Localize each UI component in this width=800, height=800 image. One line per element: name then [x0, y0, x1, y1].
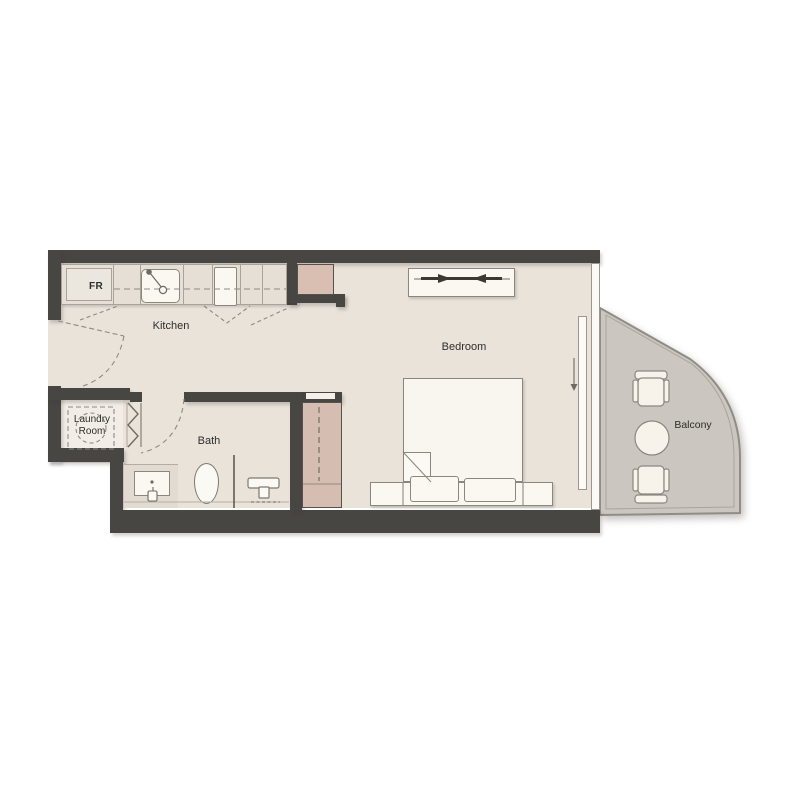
wall-shaft-foot [336, 294, 345, 307]
bedroom-label: Bedroom [424, 341, 504, 354]
counter-divider [212, 264, 213, 305]
wall-bath-top-hinge [130, 392, 142, 402]
counter-divider [262, 264, 263, 305]
service-shaft [297, 264, 334, 295]
laundry-room-label: Laundry Room [62, 414, 122, 437]
fridge-label: FR [78, 281, 114, 293]
balcony-label: Balcony [661, 419, 725, 431]
balcony-area [598, 298, 748, 523]
wall-left-upper [48, 250, 61, 320]
wardrobe-top-notch [306, 393, 335, 399]
bed-base [370, 482, 553, 506]
balcony-chair-icon [633, 466, 669, 503]
counter-divider [183, 264, 184, 305]
laundry-label-line2: Room [62, 426, 122, 438]
bath-label: Bath [184, 435, 234, 448]
entry-door-opening [48, 320, 61, 386]
stove [214, 267, 237, 306]
laundry-label-line1: Laundry [62, 414, 122, 426]
balcony-chair-icon [633, 371, 669, 406]
kitchen-label: Kitchen [136, 320, 206, 333]
wall-bottom [110, 510, 600, 533]
window-wall [591, 263, 600, 510]
tv-console [408, 268, 515, 297]
wall-top [48, 250, 600, 263]
balcony-outline [600, 308, 740, 515]
wall-step-vertical [110, 460, 123, 513]
vanity-sink [134, 471, 170, 496]
wardrobe [302, 402, 342, 508]
counter-divider [240, 264, 241, 305]
pillow [410, 476, 459, 502]
pillow [464, 478, 516, 502]
floor-plan: FR Kitchen Bedroom Bath Laundry Room Bal… [0, 0, 800, 800]
sliding-door-panel [578, 316, 587, 490]
kitchen-sink [141, 269, 180, 303]
wall-bath-bedroom-divider [290, 392, 302, 510]
wall-laundry-top [48, 388, 130, 400]
